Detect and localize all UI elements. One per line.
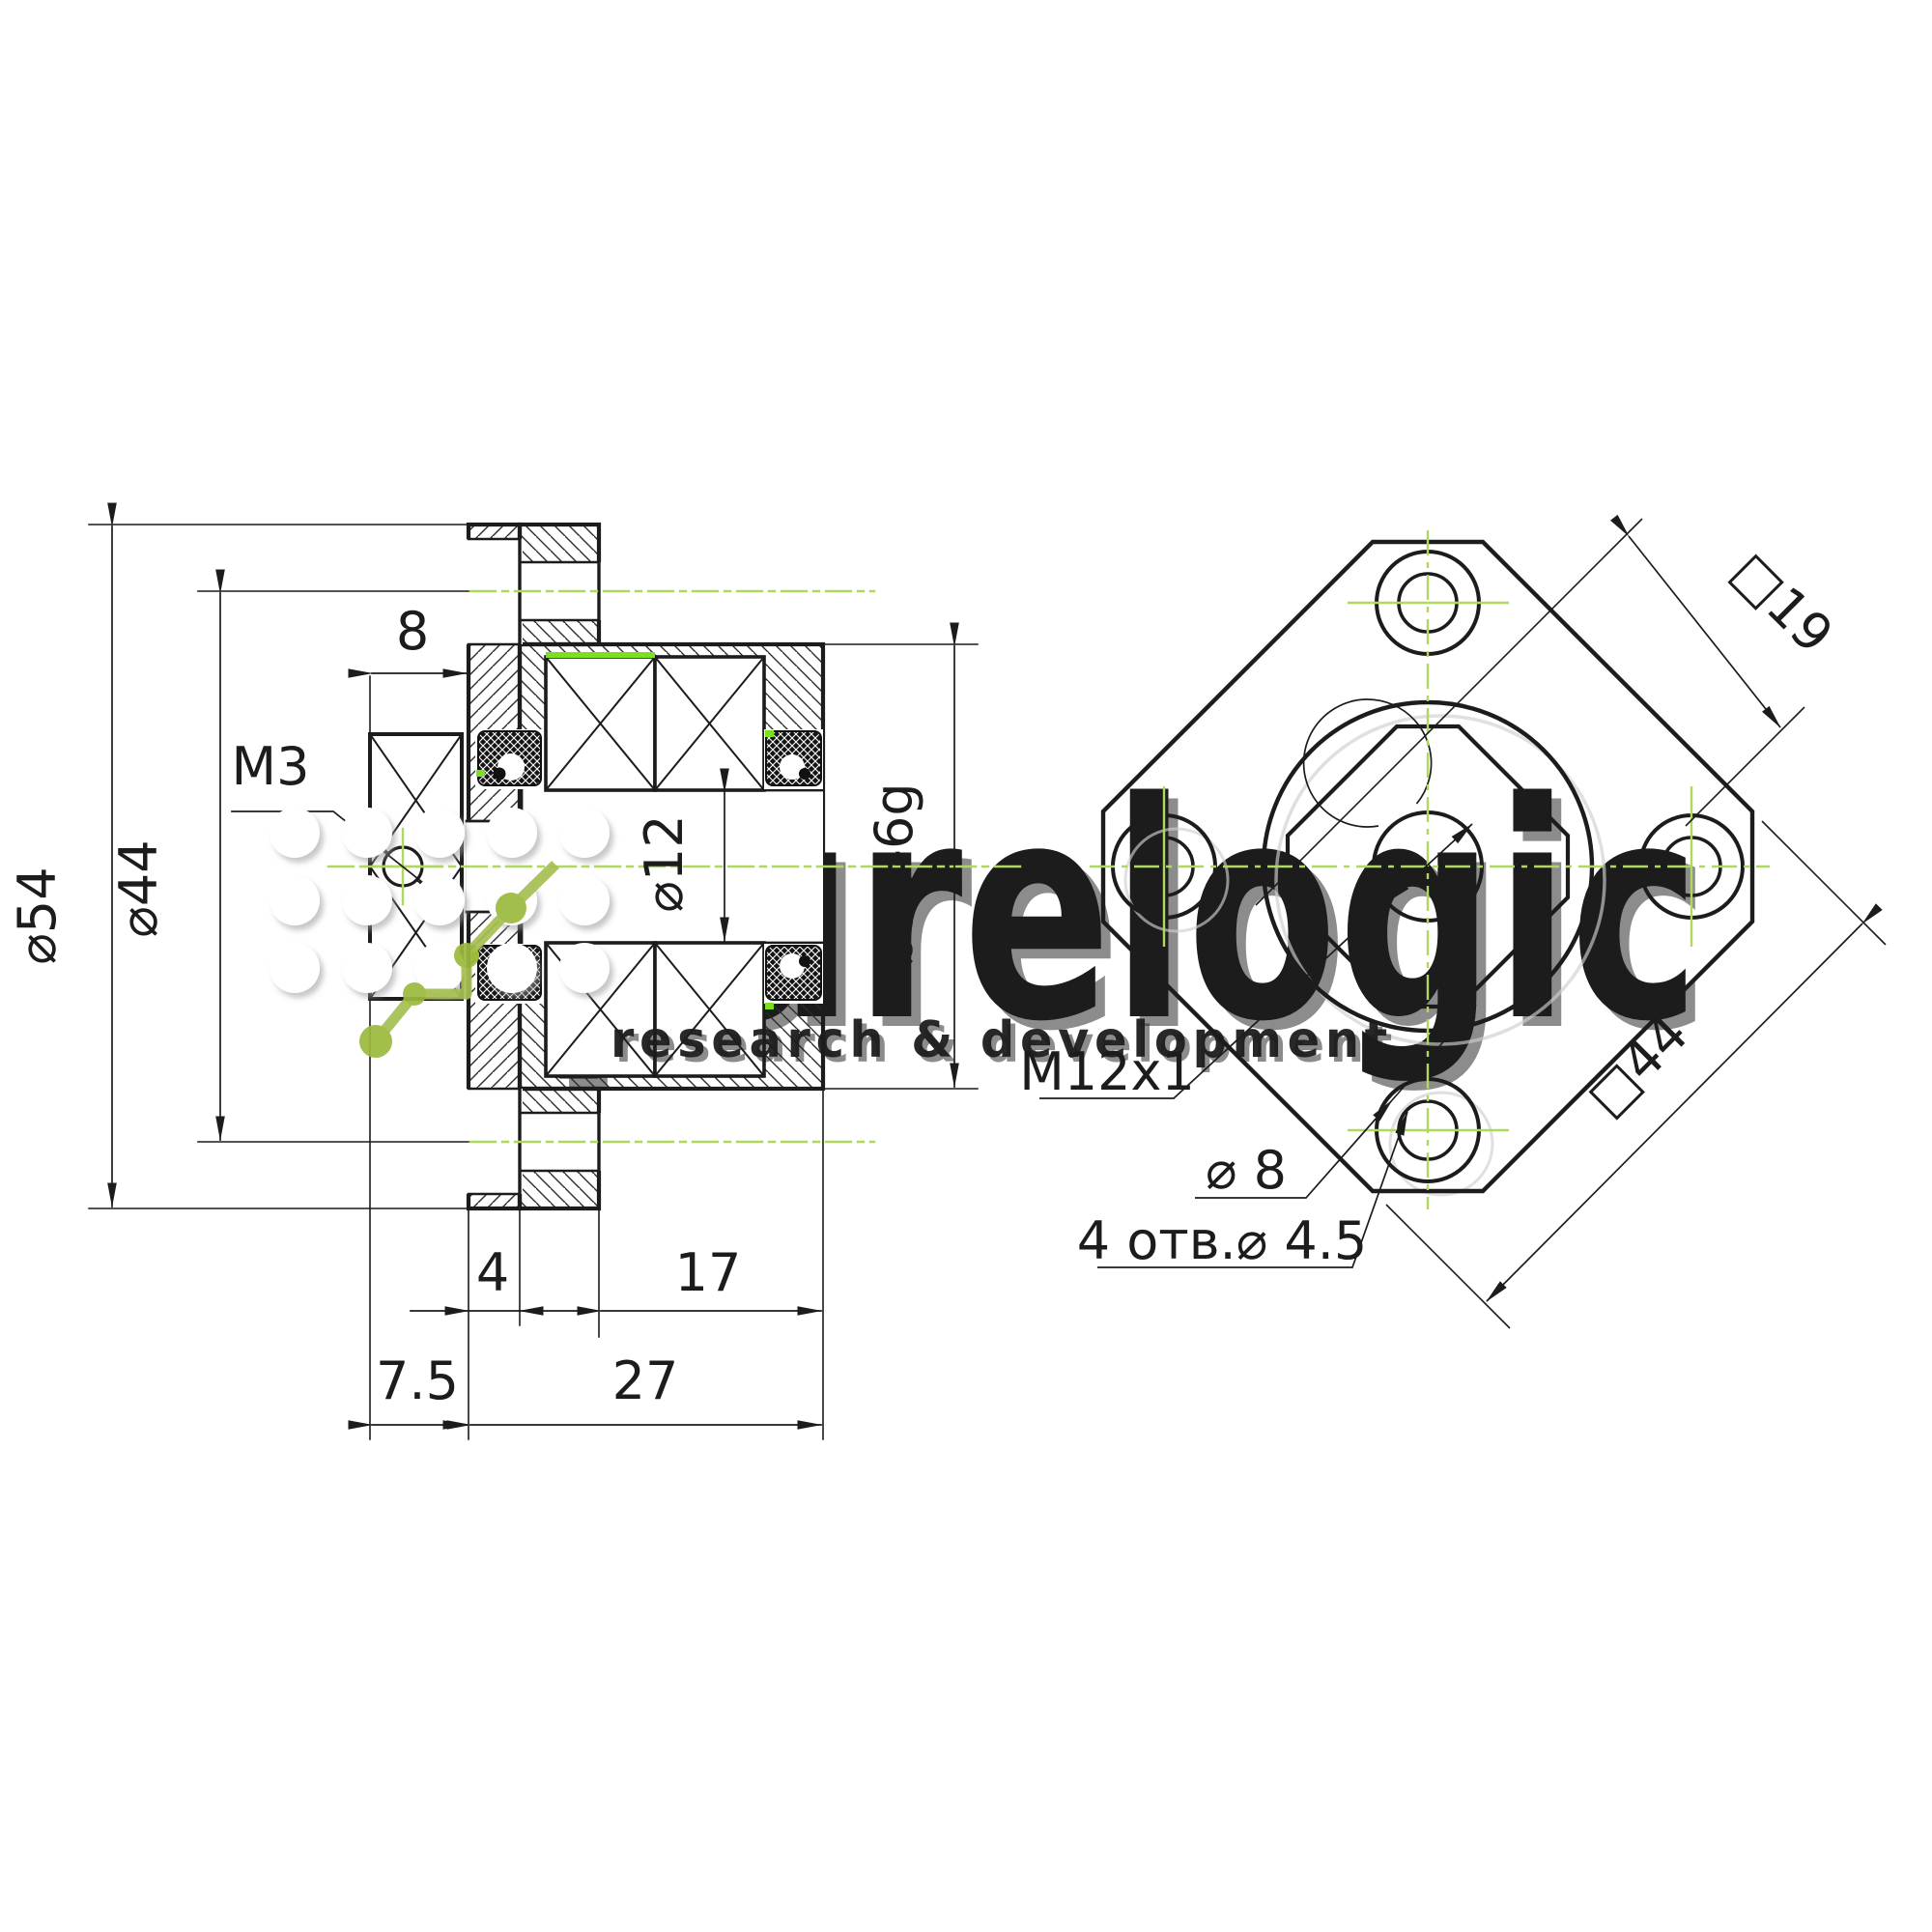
dim-label-8: 8 <box>396 601 429 662</box>
dim-label-dia8: ⌀ 8 <box>1206 1140 1287 1201</box>
seal-spring <box>494 768 506 781</box>
highlight-dot <box>765 730 774 737</box>
logo-node <box>403 982 426 1006</box>
dim-label-holes4: 4 отв.⌀ 4.5 <box>1077 1210 1368 1271</box>
watermark-dot <box>487 808 537 858</box>
dim-label-17: 17 <box>675 1242 742 1303</box>
watermark-dot <box>559 808 610 858</box>
logo-node <box>496 893 526 923</box>
dim-label-4: 4 <box>476 1242 509 1303</box>
dim-label-dia12: ⌀12 <box>634 814 695 912</box>
watermark-dot <box>559 943 610 993</box>
dim-label-m3: M3 <box>232 736 310 797</box>
drawing-canvas: purelogic purelogic <box>0 0 1932 1932</box>
seal-spring <box>799 955 810 967</box>
watermark-dot <box>559 875 610 925</box>
hatch-region <box>520 620 599 644</box>
dim-label-dia36: ⌀36-6g <box>864 782 924 965</box>
hatch-region <box>520 1089 599 1113</box>
technical-drawing: purelogic purelogic <box>0 0 1932 1932</box>
watermark-tagline: research & development research & develo… <box>611 1011 1398 1074</box>
hatch-region <box>469 525 520 539</box>
hatch-region <box>520 1171 599 1208</box>
watermark-dot <box>342 808 392 858</box>
logo-node <box>359 1025 392 1058</box>
highlight-dot <box>476 770 485 777</box>
seal-top-right <box>764 729 823 789</box>
highlight-line <box>546 652 655 658</box>
tagline-text: research & development <box>611 1011 1393 1069</box>
watermark-dot <box>342 943 392 993</box>
watermark-dot <box>414 808 465 858</box>
hatch-region <box>520 525 599 562</box>
hatch-region <box>764 644 823 729</box>
seal-spring <box>799 768 810 780</box>
dim-label-dia44: ⌀44 <box>108 839 169 937</box>
watermark-dot <box>270 943 320 993</box>
hatch-region <box>469 1194 520 1208</box>
watermark-dot <box>342 875 392 925</box>
seal-top-left <box>475 729 544 789</box>
seal-bottom-right <box>764 944 823 1004</box>
highlight-dot <box>765 1003 774 1009</box>
watermark-dot <box>414 875 465 925</box>
watermark-dot <box>487 943 537 993</box>
watermark-dot <box>270 875 320 925</box>
dim-label-27: 27 <box>612 1350 679 1411</box>
hatch-region <box>520 1004 546 1089</box>
logo-node <box>454 943 479 968</box>
dim-label-dia54: ⌀54 <box>7 867 68 964</box>
hatch-region <box>520 644 546 729</box>
dim-label-75: 7.5 <box>376 1350 459 1411</box>
watermark-dot <box>270 808 320 858</box>
